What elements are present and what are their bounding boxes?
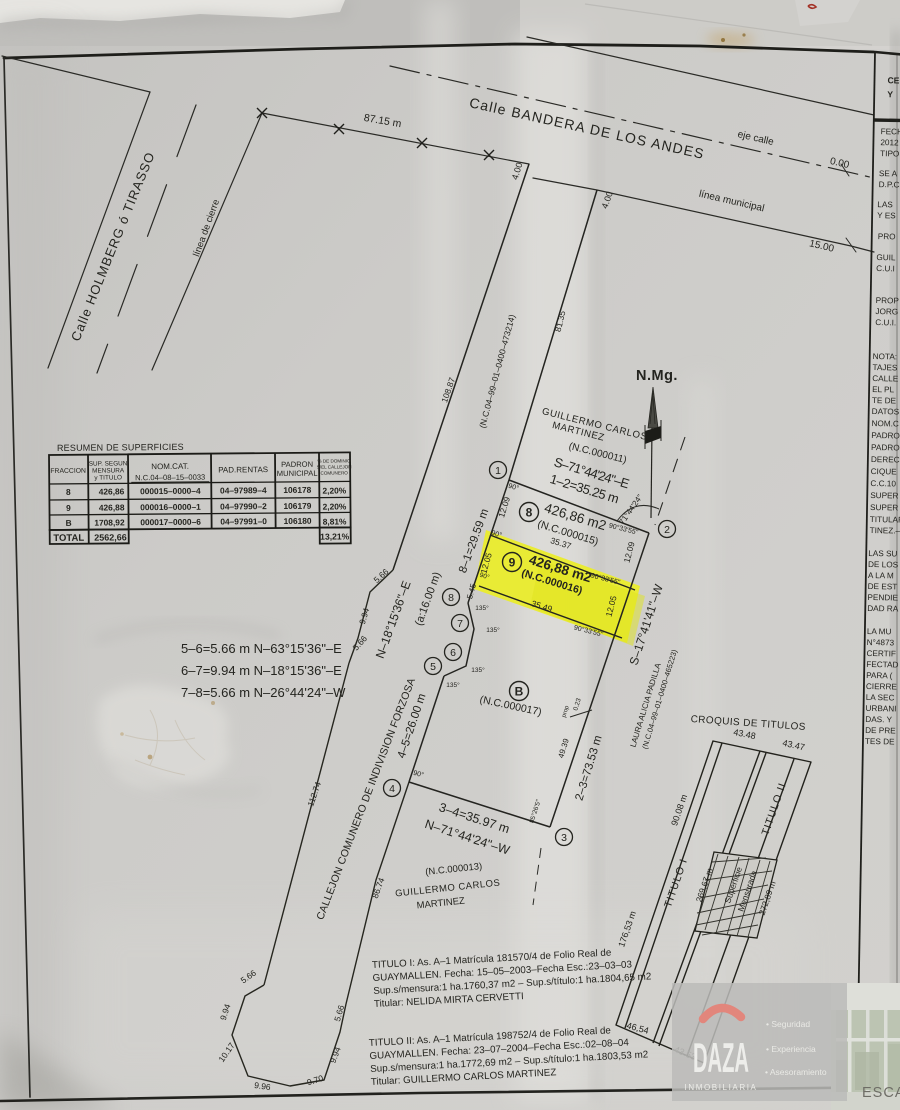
svg-text:JORG: JORG xyxy=(875,307,898,316)
svg-text:• Experiencia: • Experiencia xyxy=(766,1044,816,1054)
svg-text:2,20%: 2,20% xyxy=(322,485,346,495)
svg-text:NOM.C: NOM.C xyxy=(871,419,899,428)
svg-text:C.U.I.: C.U.I. xyxy=(875,318,896,327)
svg-text:CERTIF: CERTIF xyxy=(866,649,896,659)
svg-text:FRACCION: FRACCION xyxy=(50,468,86,475)
svg-text:CIERRE: CIERRE xyxy=(866,682,898,692)
svg-text:135°: 135° xyxy=(446,681,460,689)
svg-text:426,86: 426,86 xyxy=(99,486,125,496)
svg-text:• Asesoramiento: • Asesoramiento xyxy=(765,1067,827,1077)
svg-text:N.Mg.: N.Mg. xyxy=(636,368,678,384)
svg-text:4: 4 xyxy=(389,783,395,795)
svg-text:2,20%: 2,20% xyxy=(323,501,347,511)
svg-text:LAS SU: LAS SU xyxy=(868,549,897,559)
svg-text:8: 8 xyxy=(526,506,533,520)
svg-text:CALLE: CALLE xyxy=(872,374,899,383)
svg-text:N.C.04–08–15–0033: N.C.04–08–15–0033 xyxy=(135,473,205,483)
svg-text:2562,66: 2562,66 xyxy=(94,532,127,542)
svg-text:SE A: SE A xyxy=(879,169,898,178)
svg-text:CE: CE xyxy=(887,75,899,85)
svg-text:MUNICIPAL: MUNICIPAL xyxy=(277,469,318,478)
svg-text:NOTA:: NOTA: xyxy=(873,352,898,361)
svg-text:106180: 106180 xyxy=(284,516,312,526)
svg-text:PROP: PROP xyxy=(876,296,900,305)
svg-text:TIPO:: TIPO: xyxy=(880,149,900,158)
svg-text:y TITULO: y TITULO xyxy=(94,474,122,481)
svg-text:URBANI: URBANI xyxy=(865,704,896,714)
svg-text:FECH: FECH xyxy=(881,127,900,136)
svg-text:13,21%: 13,21% xyxy=(320,531,350,541)
svg-text:PADRO: PADRO xyxy=(871,443,900,452)
svg-text:426,88: 426,88 xyxy=(99,502,125,512)
svg-text:DEREC: DEREC xyxy=(871,455,900,465)
svg-text:D.P.C: D.P.C xyxy=(879,180,900,189)
svg-text:NOM.CAT.: NOM.CAT. xyxy=(151,462,189,471)
svg-text:A LA M: A LA M xyxy=(868,571,894,580)
svg-text:000017–0000–6: 000017–0000–6 xyxy=(140,517,201,528)
svg-text:Y ES: Y ES xyxy=(877,211,896,220)
svg-text:SUPER: SUPER xyxy=(870,491,898,500)
svg-text:RESUMEN DE SUPERFICIES: RESUMEN DE SUPERFICIES xyxy=(57,442,184,453)
svg-text:7: 7 xyxy=(457,618,463,630)
svg-text:CIQUE: CIQUE xyxy=(871,467,898,476)
svg-text:SUPER: SUPER xyxy=(870,503,898,512)
svg-text:2: 2 xyxy=(664,524,670,536)
svg-text:PADRO: PADRO xyxy=(871,431,900,440)
svg-text:000015–0000–4: 000015–0000–4 xyxy=(140,486,201,497)
svg-text:PADRON: PADRON xyxy=(281,460,313,469)
svg-text:Y: Y xyxy=(887,89,893,99)
svg-text:04–97989–4: 04–97989–4 xyxy=(220,485,267,495)
svg-text:TE DE: TE DE xyxy=(872,396,897,405)
svg-text:8: 8 xyxy=(66,487,71,497)
svg-text:6–7=9.94 m N–18°15'36"–E: 6–7=9.94 m N–18°15'36"–E xyxy=(181,663,342,678)
svg-text:04–97990–2: 04–97990–2 xyxy=(220,501,267,511)
svg-text:% DE DOMINIO: % DE DOMINIO xyxy=(317,458,351,463)
svg-text:135°: 135° xyxy=(475,604,489,612)
svg-text:S/EL CALLEJON: S/EL CALLEJON xyxy=(317,464,352,469)
svg-text:N°4873: N°4873 xyxy=(867,638,895,647)
svg-text:C.C.10: C.C.10 xyxy=(870,479,896,488)
svg-text:1708,92: 1708,92 xyxy=(94,517,125,527)
svg-text:TINEZ.–: TINEZ.– xyxy=(870,526,900,536)
svg-text:B: B xyxy=(66,518,72,528)
svg-text:DATOS: DATOS xyxy=(872,407,900,416)
svg-text:LA SEC: LA SEC xyxy=(866,693,895,703)
svg-text:PARA (: PARA ( xyxy=(866,671,893,680)
svg-text:5–6=5.66 m N–63°15'36"–E: 5–6=5.66 m N–63°15'36"–E xyxy=(181,641,342,656)
svg-text:8: 8 xyxy=(448,592,454,604)
svg-text:TITULAR: TITULAR xyxy=(870,515,900,525)
svg-text:LA MU: LA MU xyxy=(867,627,892,636)
svg-text:B: B xyxy=(515,685,524,699)
svg-text:EL PL: EL PL xyxy=(872,385,895,394)
svg-text:2012: 2012 xyxy=(880,138,899,147)
svg-text:106179: 106179 xyxy=(283,501,311,511)
svg-text:LAS: LAS xyxy=(877,200,893,209)
svg-text:PAD.RENTAS: PAD.RENTAS xyxy=(218,465,268,474)
svg-text:3: 3 xyxy=(561,832,567,844)
svg-text:7–8=5.66 m N–26°44'24"–W: 7–8=5.66 m N–26°44'24"–W xyxy=(181,685,346,700)
svg-text:ESCA: ESCA xyxy=(862,1085,900,1101)
svg-text:C.U.I: C.U.I xyxy=(876,264,895,273)
svg-text:9: 9 xyxy=(66,503,71,513)
svg-text:TOTAL: TOTAL xyxy=(53,533,84,544)
svg-text:9: 9 xyxy=(509,556,516,570)
svg-text:04–97991–0: 04–97991–0 xyxy=(220,516,267,526)
svg-text:DAZA: DAZA xyxy=(693,1034,749,1081)
svg-text:TAJES: TAJES xyxy=(872,363,898,372)
svg-text:INMOBILIARIA: INMOBILIARIA xyxy=(685,1083,758,1092)
svg-text:000016–0000–1: 000016–0000–1 xyxy=(140,502,201,513)
svg-text:DE LOS: DE LOS xyxy=(868,560,899,570)
svg-text:COMUNERO: COMUNERO xyxy=(320,470,348,475)
svg-text:DAD RA: DAD RA xyxy=(867,604,899,614)
svg-text:DAS. Y: DAS. Y xyxy=(865,715,892,724)
svg-text:PRO: PRO xyxy=(878,232,896,241)
svg-text:• Seguridad: • Seguridad xyxy=(766,1019,810,1029)
svg-text:DE PRE: DE PRE xyxy=(865,726,896,736)
svg-text:FECTAD: FECTAD xyxy=(866,660,898,670)
svg-text:GUIL: GUIL xyxy=(876,253,896,262)
svg-text:TES DE: TES DE xyxy=(865,737,895,747)
svg-text:6: 6 xyxy=(450,647,456,659)
svg-text:5: 5 xyxy=(430,661,436,673)
svg-text:DE EST: DE EST xyxy=(868,582,898,592)
svg-text:135°: 135° xyxy=(486,626,500,634)
svg-text:106178: 106178 xyxy=(283,485,311,495)
svg-text:135°: 135° xyxy=(471,666,485,674)
svg-text:1: 1 xyxy=(495,465,501,477)
svg-text:PENDIE: PENDIE xyxy=(867,593,898,603)
svg-text:8,81%: 8,81% xyxy=(323,516,347,526)
